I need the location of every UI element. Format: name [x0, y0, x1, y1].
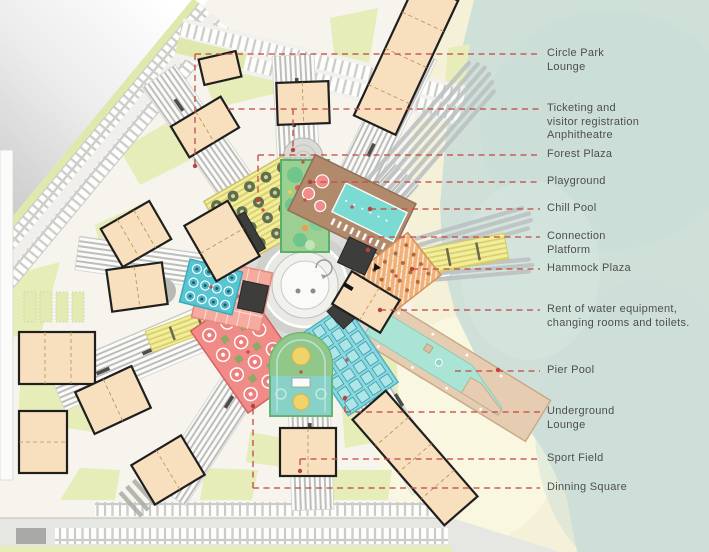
site-plan-map — [0, 0, 709, 552]
masterplan-screenshot: Circle Park Lounge Ticketing and visitor… — [0, 0, 709, 552]
arch-plaza — [270, 333, 332, 416]
left-edge-road — [0, 150, 13, 480]
